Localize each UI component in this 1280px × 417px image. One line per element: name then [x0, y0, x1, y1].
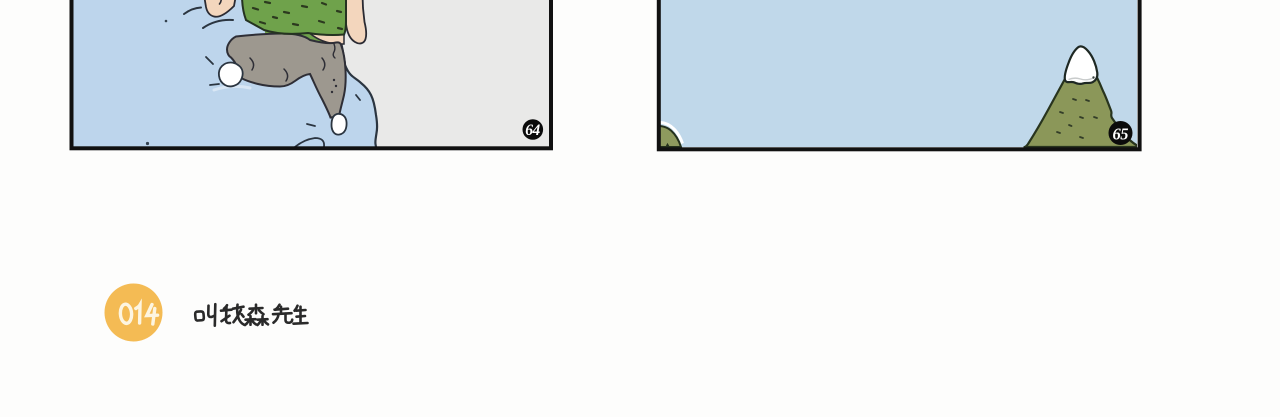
svg-text:65: 65: [1112, 125, 1128, 144]
svg-text:64: 64: [525, 122, 540, 139]
